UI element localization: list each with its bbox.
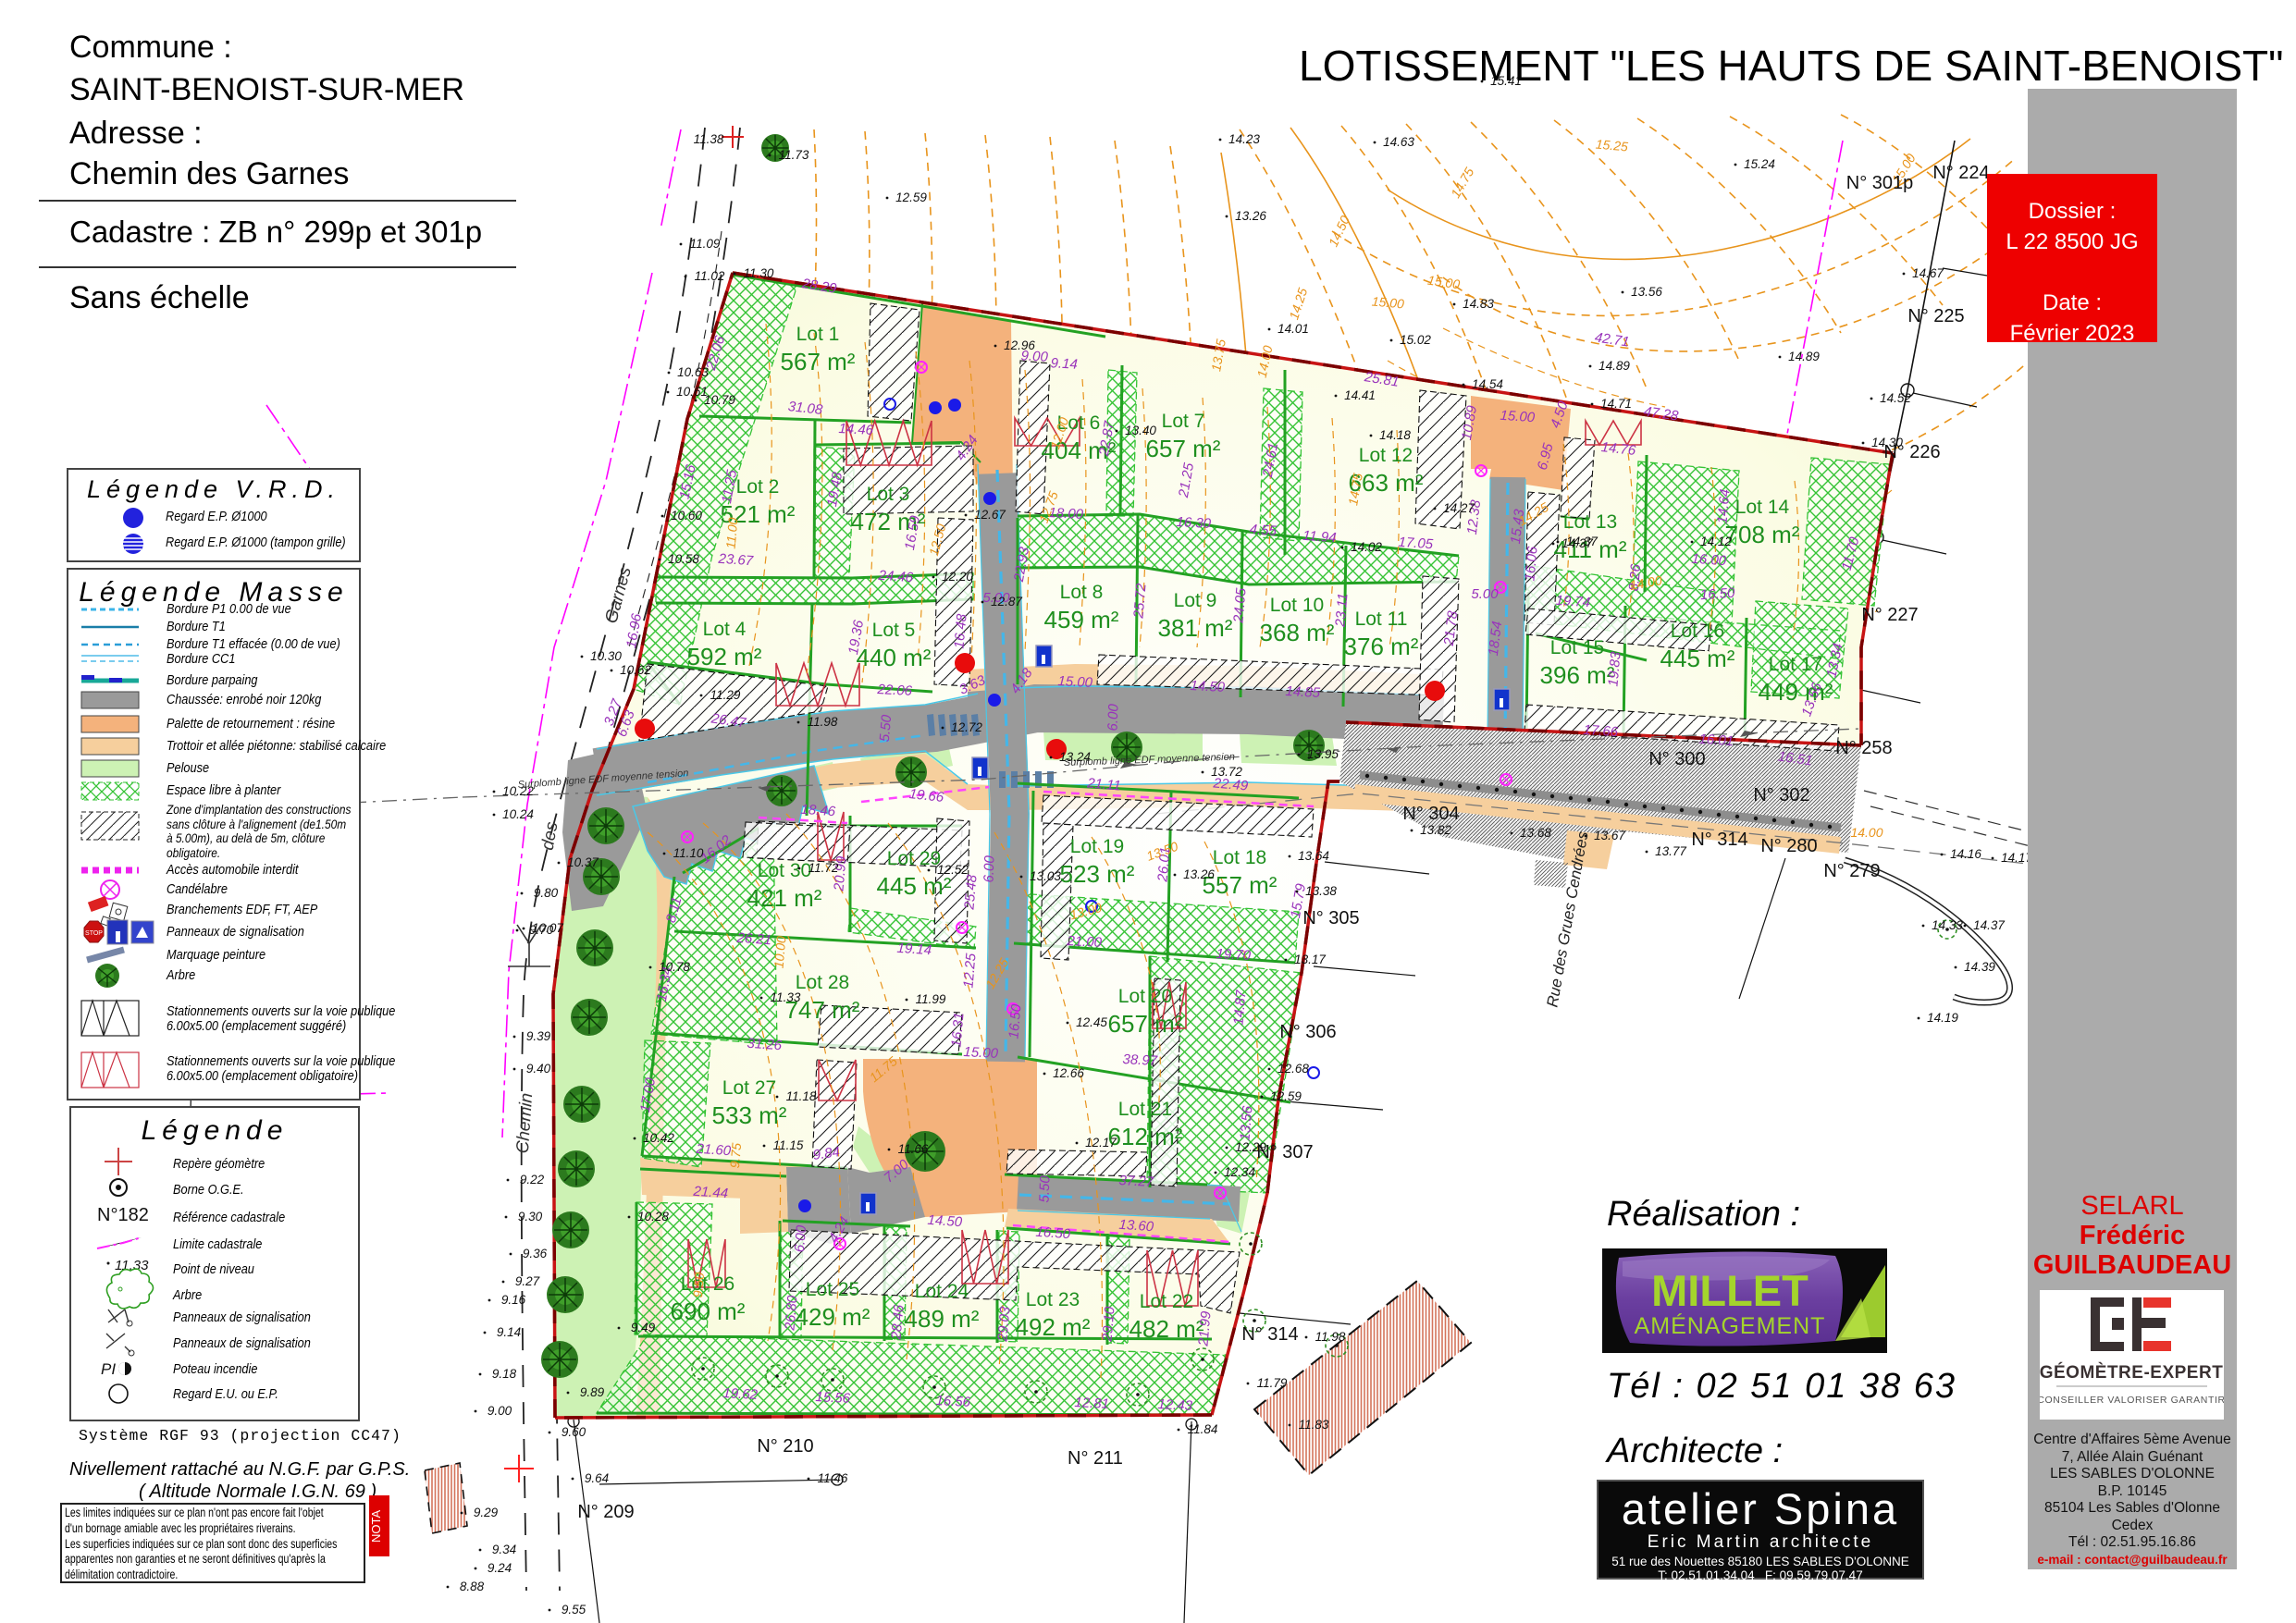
svg-text:12.81: 12.81 (1074, 1395, 1109, 1412)
svg-text:13.72: 13.72 (1211, 765, 1242, 779)
svg-text:14.50: 14.50 (927, 1212, 963, 1231)
svg-text:11.38: 11.38 (694, 132, 724, 146)
svg-text:10.37: 10.37 (567, 855, 599, 869)
svg-text:9.60: 9.60 (562, 1425, 586, 1439)
svg-text:10.58: 10.58 (668, 552, 699, 566)
svg-text:12.34: 12.34 (1224, 1165, 1255, 1179)
svg-text:N°182: N°182 (97, 1205, 149, 1225)
svg-text:14.89: 14.89 (1788, 350, 1820, 363)
svg-text:16.50: 16.50 (1699, 585, 1735, 604)
svg-text:13.03: 13.03 (1030, 869, 1061, 883)
svg-text:19.83: 19.83 (1605, 651, 1623, 688)
svg-text:9.80: 9.80 (534, 886, 559, 900)
svg-text:24.46: 24.46 (877, 568, 914, 586)
svg-text:12.20: 12.20 (942, 570, 973, 584)
svg-text:15.56: 15.56 (815, 1389, 851, 1407)
svg-text:16.01: 16.01 (1698, 732, 1734, 750)
svg-text:9.49: 9.49 (631, 1321, 656, 1334)
svg-text:13.60: 13.60 (1118, 1217, 1154, 1236)
svg-text:Lot 4: Lot 4 (703, 619, 747, 640)
svg-text:10.42: 10.42 (643, 1131, 674, 1145)
svg-text:N° 300: N° 300 (1648, 749, 1705, 769)
svg-text:15.00: 15.00 (1426, 273, 1461, 292)
svg-text:12.45: 12.45 (1076, 1015, 1107, 1029)
svg-text:N° 280: N° 280 (1760, 836, 1817, 856)
svg-text:15.00: 15.00 (963, 1044, 999, 1062)
svg-text:Lot 13: Lot 13 (1563, 511, 1617, 533)
svg-text:MILLET: MILLET (1651, 1266, 1808, 1315)
svg-text:9.22: 9.22 (520, 1173, 545, 1187)
svg-text:567 m²: 567 m² (781, 348, 856, 375)
svg-text:16.06: 16.06 (1522, 546, 1540, 583)
svg-text:11.83: 11.83 (1299, 1418, 1329, 1432)
svg-text:Lot 18: Lot 18 (1213, 847, 1266, 868)
svg-text:445 m²: 445 m² (1660, 645, 1735, 672)
svg-text:16.48: 16.48 (951, 613, 969, 650)
svg-text:9.14: 9.14 (1050, 355, 1078, 373)
svg-text:14.46: 14.46 (838, 421, 874, 438)
svg-text:708 m²: 708 m² (1725, 521, 1800, 548)
svg-text:Lot 11: Lot 11 (1355, 609, 1408, 630)
svg-text:12.17: 12.17 (1085, 1136, 1117, 1150)
svg-text:15.00: 15.00 (1371, 294, 1405, 312)
svg-text:21.11: 21.11 (1086, 775, 1122, 793)
svg-text:9.24: 9.24 (488, 1561, 512, 1575)
svg-text:Lot 2: Lot 2 (736, 476, 780, 498)
svg-text:29.03: 29.03 (994, 1306, 1013, 1344)
svg-text:9.30: 9.30 (518, 1210, 543, 1223)
svg-text:489 m²: 489 m² (905, 1305, 980, 1333)
svg-text:10.60: 10.60 (671, 509, 702, 523)
svg-text:14.41: 14.41 (1344, 388, 1376, 402)
svg-text:26.80: 26.80 (782, 1295, 800, 1333)
svg-text:N° 211: N° 211 (1068, 1448, 1123, 1469)
svg-text:11.73: 11.73 (779, 148, 809, 162)
svg-text:13.77: 13.77 (1655, 844, 1686, 858)
svg-text:11.79: 11.79 (1257, 1376, 1288, 1390)
svg-text:19.74: 19.74 (1555, 593, 1591, 611)
svg-text:11.94: 11.94 (1302, 528, 1338, 547)
svg-text:21.44: 21.44 (692, 1184, 729, 1202)
svg-text:16.30: 16.30 (1176, 514, 1212, 532)
svg-text:N° 209: N° 209 (577, 1502, 634, 1522)
svg-text:12.59: 12.59 (895, 191, 927, 204)
svg-text:10.00: 10.00 (772, 935, 789, 969)
svg-text:440 m²: 440 m² (857, 644, 932, 671)
svg-text:482 m²: 482 m² (1129, 1315, 1204, 1343)
svg-text:N° 210: N° 210 (757, 1436, 813, 1457)
svg-text:19.14: 19.14 (896, 941, 932, 959)
svg-text:16.50: 16.50 (1006, 1003, 1024, 1040)
svg-text:12.87: 12.87 (991, 595, 1022, 609)
svg-text:368 m²: 368 m² (1260, 619, 1335, 646)
svg-text:13.82: 13.82 (1420, 823, 1451, 837)
svg-text:11.99: 11.99 (916, 992, 946, 1006)
svg-text:19.62: 19.62 (722, 1385, 759, 1403)
svg-text:Lot 15: Lot 15 (1550, 637, 1604, 658)
svg-text:9.75: 9.75 (727, 1142, 744, 1169)
svg-text:6.00: 6.00 (792, 1224, 810, 1253)
svg-text:N° 301p: N° 301p (1846, 173, 1914, 193)
svg-text:9.39: 9.39 (526, 1029, 551, 1043)
svg-text:14.83: 14.83 (1463, 297, 1494, 311)
svg-text:14.16: 14.16 (1950, 847, 1981, 861)
svg-text:9.55: 9.55 (562, 1603, 586, 1617)
svg-text:14.39: 14.39 (1964, 960, 1995, 974)
svg-text:657 m²: 657 m² (1108, 1010, 1183, 1038)
svg-text:13.68: 13.68 (1520, 826, 1551, 840)
svg-text:9.14: 9.14 (497, 1325, 521, 1339)
svg-text:11.10: 11.10 (673, 846, 704, 860)
svg-text:612 m²: 612 m² (1108, 1123, 1183, 1150)
svg-text:11.33: 11.33 (115, 1258, 149, 1273)
svg-text:13.67: 13.67 (1594, 829, 1625, 842)
svg-text:11.98: 11.98 (808, 715, 838, 729)
svg-text:17.66: 17.66 (1583, 722, 1619, 741)
svg-text:Lot 27: Lot 27 (722, 1077, 776, 1099)
svg-text:14.50: 14.50 (1326, 213, 1352, 249)
svg-text:8.88: 8.88 (460, 1580, 485, 1593)
svg-text:533 m²: 533 m² (712, 1101, 787, 1129)
svg-text:Lot 8: Lot 8 (1060, 582, 1104, 603)
svg-text:15.25: 15.25 (1595, 137, 1629, 154)
svg-text:14.54: 14.54 (1472, 377, 1503, 391)
svg-text:Lot 5: Lot 5 (872, 620, 916, 641)
svg-text:690 m²: 690 m² (671, 1297, 746, 1325)
svg-text:14.52: 14.52 (1880, 391, 1911, 405)
svg-text:5.50: 5.50 (1036, 1174, 1053, 1202)
svg-text:14.67: 14.67 (1912, 266, 1944, 280)
svg-text:15.00: 15.00 (1057, 673, 1093, 691)
svg-text:13.95: 13.95 (1307, 747, 1339, 761)
svg-text:9.36: 9.36 (523, 1247, 548, 1260)
svg-text:14.87: 14.87 (1230, 990, 1249, 1027)
svg-text:14.85: 14.85 (1285, 683, 1321, 701)
svg-text:14.01: 14.01 (1278, 322, 1309, 336)
svg-text:9.50: 9.50 (690, 1272, 707, 1298)
svg-text:Chemin: Chemin (513, 1092, 537, 1154)
svg-text:25.48: 25.48 (961, 874, 980, 912)
svg-text:Lot 24: Lot 24 (915, 1281, 969, 1302)
svg-text:657 m²: 657 m² (1146, 435, 1221, 462)
svg-text:5.00: 5.00 (1471, 586, 1499, 602)
svg-text:523 m²: 523 m² (1060, 860, 1135, 888)
svg-text:10.79: 10.79 (704, 393, 735, 407)
svg-text:11.30: 11.30 (744, 266, 774, 280)
svg-text:9.34: 9.34 (492, 1543, 516, 1556)
svg-text:492 m²: 492 m² (1016, 1313, 1091, 1341)
svg-text:16.00: 16.00 (1691, 551, 1727, 570)
svg-text:396 m²: 396 m² (1540, 661, 1615, 689)
svg-text:N° 314: N° 314 (1691, 830, 1747, 850)
svg-text:Lot 10: Lot 10 (1270, 595, 1324, 616)
svg-text:13.64: 13.64 (1298, 849, 1329, 863)
svg-text:11.84: 11.84 (1188, 1422, 1218, 1436)
svg-text:592 m²: 592 m² (687, 643, 762, 670)
svg-text:Lot 29: Lot 29 (887, 848, 941, 869)
svg-text:18.46: 18.46 (800, 802, 836, 820)
svg-text:376 m²: 376 m² (1344, 633, 1419, 660)
svg-text:Lot 22: Lot 22 (1140, 1291, 1193, 1312)
svg-text:13.40: 13.40 (1125, 424, 1156, 437)
svg-text:N° 227: N° 227 (1861, 605, 1918, 625)
svg-text:CONSEILLER VALORISER GARANTIR: CONSEILLER VALORISER GARANTIR (2040, 1395, 2224, 1406)
svg-text:13.26: 13.26 (1235, 209, 1266, 223)
svg-text:29.10: 29.10 (1099, 1306, 1117, 1344)
svg-text:10.30: 10.30 (590, 649, 622, 663)
svg-text:10.78: 10.78 (659, 960, 690, 974)
svg-text:14.37: 14.37 (1973, 918, 2005, 932)
svg-text:14.19: 14.19 (1927, 1011, 1958, 1025)
svg-text:17.05: 17.05 (1398, 535, 1434, 553)
svg-text:9.40: 9.40 (526, 1062, 551, 1076)
svg-text:Lot 1: Lot 1 (796, 324, 840, 345)
svg-text:Lot 25: Lot 25 (806, 1279, 859, 1300)
svg-text:14.00: 14.00 (1850, 825, 1882, 840)
svg-text:N° 258: N° 258 (1835, 738, 1892, 758)
svg-text:14.27: 14.27 (1443, 501, 1475, 515)
svg-text:PI: PI (101, 1360, 116, 1378)
svg-text:11.98: 11.98 (1315, 1330, 1346, 1344)
svg-text:des: des (538, 820, 562, 852)
svg-text:N° 226: N° 226 (1883, 442, 1940, 462)
svg-text:26.21: 26.21 (735, 930, 772, 949)
svg-text:37.27: 37.27 (1118, 1173, 1154, 1190)
svg-text:12.68: 12.68 (1278, 1062, 1309, 1076)
svg-text:12.66: 12.66 (1053, 1066, 1084, 1080)
svg-text:14.64: 14.64 (1714, 488, 1733, 524)
svg-text:11.00: 11.00 (723, 517, 741, 549)
svg-text:14.63: 14.63 (1383, 135, 1414, 149)
svg-text:11.02: 11.02 (695, 269, 725, 283)
svg-text:12.25: 12.25 (960, 953, 979, 990)
svg-text:19.70: 19.70 (1216, 946, 1252, 964)
svg-text:Lot 7: Lot 7 (1162, 411, 1205, 432)
svg-text:12.43: 12.43 (1157, 1396, 1193, 1414)
svg-text:14.25: 14.25 (1286, 286, 1310, 321)
svg-text:N° 305: N° 305 (1302, 908, 1359, 928)
svg-text:N° 302: N° 302 (1753, 785, 1809, 805)
svg-text:Lot 3: Lot 3 (867, 484, 910, 505)
svg-text:14.75: 14.75 (1448, 165, 1476, 201)
svg-text:4.55: 4.55 (1249, 522, 1278, 539)
svg-text:6.00: 6.00 (1105, 703, 1121, 731)
svg-text:9.16: 9.16 (501, 1293, 526, 1307)
svg-text:9.18: 9.18 (492, 1367, 517, 1381)
svg-text:11.72: 11.72 (809, 861, 839, 875)
svg-text:14.23: 14.23 (1228, 132, 1260, 146)
svg-text:21.60: 21.60 (695, 1141, 732, 1160)
svg-text:12.96: 12.96 (1004, 338, 1035, 352)
svg-text:Lot 16: Lot 16 (1671, 621, 1724, 642)
svg-text:14.89: 14.89 (1599, 359, 1630, 373)
svg-text:13.56: 13.56 (1237, 1105, 1255, 1142)
svg-text:15.00: 15.00 (1500, 408, 1536, 426)
svg-text:24.05: 24.05 (1230, 587, 1249, 625)
svg-text:12.67: 12.67 (974, 508, 1006, 522)
svg-text:9.64: 9.64 (585, 1471, 609, 1485)
svg-text:Lot 12: Lot 12 (1359, 445, 1413, 466)
svg-text:10.63: 10.63 (677, 365, 709, 379)
svg-text:10.28: 10.28 (637, 1210, 669, 1223)
svg-text:16.56: 16.56 (935, 1393, 971, 1410)
svg-text:23.67: 23.67 (717, 551, 754, 570)
svg-text:421 m²: 421 m² (747, 884, 822, 912)
svg-text:11.09: 11.09 (690, 237, 721, 251)
svg-text:9.27: 9.27 (515, 1274, 540, 1288)
svg-text:22.06: 22.06 (876, 682, 913, 699)
svg-text:STOP: STOP (85, 930, 103, 937)
svg-text:6.00: 6.00 (981, 855, 997, 882)
svg-text:28.46: 28.46 (888, 1304, 907, 1342)
svg-text:16.50: 16.50 (1035, 1224, 1071, 1243)
svg-text:14.33: 14.33 (1932, 918, 1963, 932)
svg-text:12.52: 12.52 (937, 863, 969, 877)
svg-text:Lot 14: Lot 14 (1735, 497, 1790, 518)
svg-text:31.26: 31.26 (747, 1036, 783, 1054)
svg-text:38.97: 38.97 (1122, 1051, 1158, 1069)
svg-text:14.12: 14.12 (1700, 535, 1732, 548)
svg-text:25.72: 25.72 (1130, 583, 1149, 621)
svg-text:N° 307: N° 307 (1256, 1142, 1313, 1162)
svg-text:14.50: 14.50 (1190, 678, 1226, 695)
svg-text:429 m²: 429 m² (796, 1303, 870, 1331)
svg-text:Lot 28: Lot 28 (796, 972, 849, 993)
svg-text:21.00: 21.00 (1066, 933, 1103, 951)
svg-text:14.02: 14.02 (1351, 540, 1382, 554)
svg-text:11.18: 11.18 (786, 1089, 817, 1103)
svg-text:13.26: 13.26 (1183, 867, 1215, 881)
svg-text:9.29: 9.29 (474, 1506, 499, 1519)
svg-text:15.24: 15.24 (1744, 157, 1775, 171)
svg-text:N° 304: N° 304 (1402, 804, 1459, 824)
svg-text:12.59: 12.59 (1270, 1089, 1302, 1103)
svg-text:N° 306: N° 306 (1279, 1022, 1336, 1042)
svg-text:9.00: 9.00 (488, 1404, 512, 1418)
svg-text:11.46: 11.46 (818, 1471, 848, 1485)
svg-text:N° 314: N° 314 (1241, 1324, 1298, 1345)
svg-text:14.18: 14.18 (1379, 428, 1411, 442)
svg-text:Lot 9: Lot 9 (1174, 590, 1217, 611)
svg-text:5.50: 5.50 (877, 714, 895, 743)
svg-text:459 m²: 459 m² (1044, 606, 1119, 633)
svg-text:13.56: 13.56 (1631, 285, 1662, 299)
svg-text:13.38: 13.38 (1305, 884, 1337, 898)
svg-text:Lot 20: Lot 20 (1118, 986, 1172, 1007)
svg-text:9.89: 9.89 (580, 1385, 605, 1399)
svg-text:Lot 19: Lot 19 (1070, 836, 1124, 857)
svg-text:14.71: 14.71 (1600, 397, 1632, 411)
svg-text:Lot 23: Lot 23 (1026, 1289, 1080, 1310)
svg-text:Lot 17: Lot 17 (1769, 654, 1822, 675)
svg-text:Lot 30: Lot 30 (758, 860, 811, 881)
svg-text:Lot 21: Lot 21 (1118, 1099, 1172, 1120)
svg-text:12.72: 12.72 (951, 720, 982, 734)
svg-text:16.31: 16.31 (948, 1012, 967, 1048)
svg-text:10.24: 10.24 (502, 807, 534, 821)
svg-text:15.02: 15.02 (1400, 333, 1431, 347)
svg-text:Lot 26: Lot 26 (681, 1273, 734, 1295)
svg-text:AMÉNAGEMENT: AMÉNAGEMENT (1635, 1312, 1826, 1339)
svg-text:11.33: 11.33 (771, 990, 801, 1004)
svg-text:11.29: 11.29 (710, 688, 741, 702)
svg-text:10.62: 10.62 (620, 663, 651, 677)
svg-text:11.15: 11.15 (773, 1138, 804, 1152)
svg-text:21.99: 21.99 (1195, 1310, 1214, 1348)
svg-text:13.17: 13.17 (1294, 953, 1326, 966)
svg-text:10.61: 10.61 (676, 385, 708, 399)
svg-text:N° 225: N° 225 (1907, 306, 1964, 326)
svg-text:11.66: 11.66 (898, 1142, 929, 1156)
svg-text:N° 279: N° 279 (1823, 861, 1880, 881)
svg-text:23.11: 23.11 (1332, 593, 1351, 629)
svg-text:14.37: 14.37 (1562, 536, 1593, 550)
svg-text:381 m²: 381 m² (1158, 614, 1233, 642)
svg-text:42.71: 42.71 (1594, 330, 1631, 350)
svg-text:GÉOMÈTRE-EXPERT: GÉOMÈTRE-EXPERT (2040, 1362, 2223, 1383)
svg-text:N° 224: N° 224 (1932, 163, 1989, 183)
